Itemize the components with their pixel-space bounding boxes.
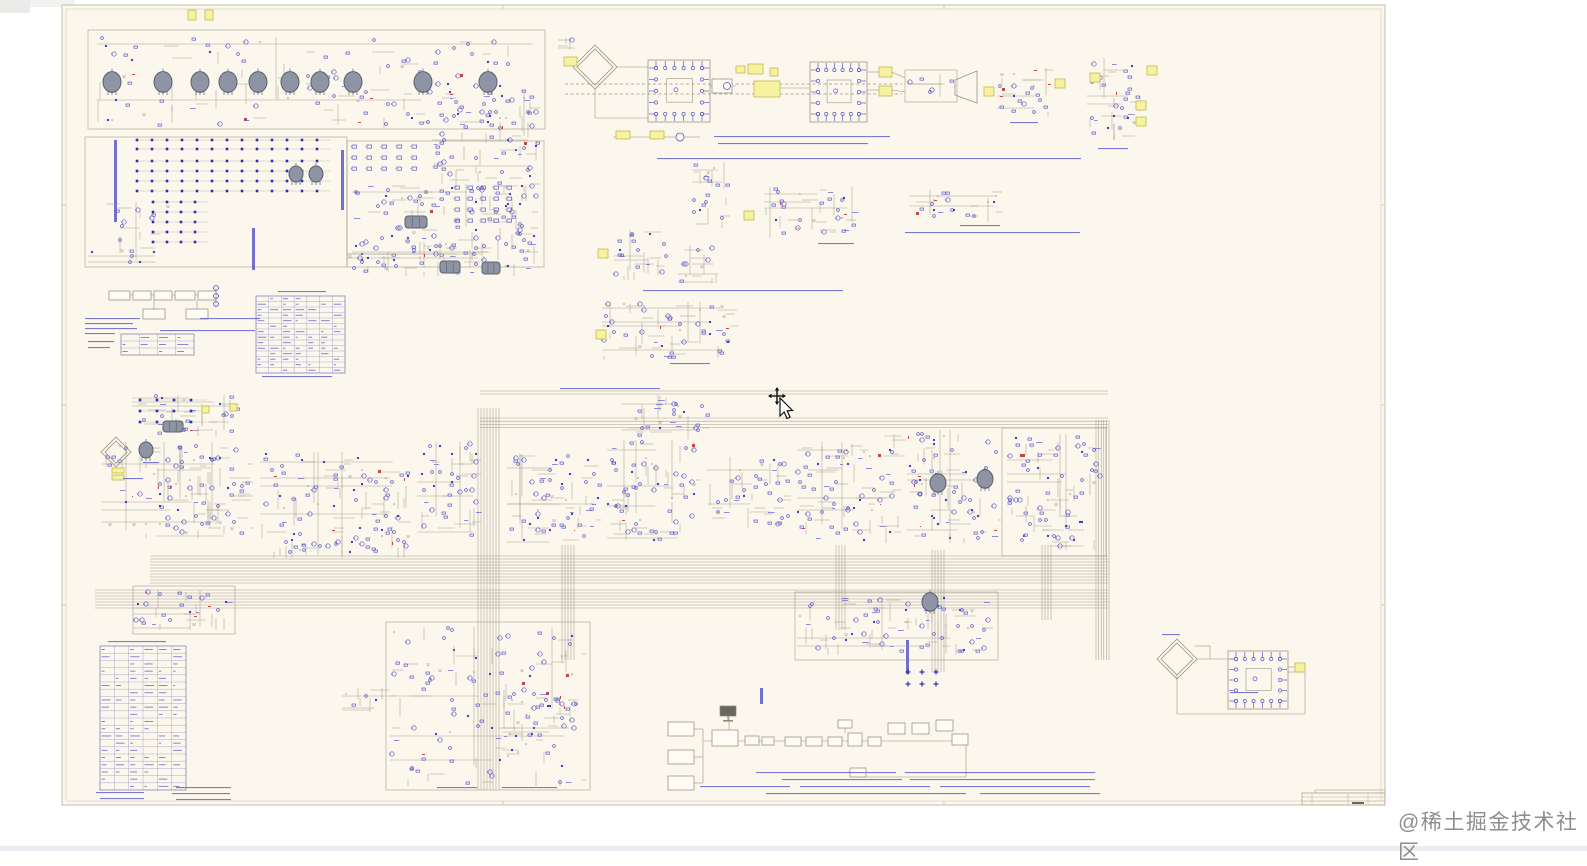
- watermark-text: @稀土掘金技术社区: [1398, 806, 1587, 866]
- yellow-net-tag[interactable]: [1090, 73, 1100, 82]
- chip-icon[interactable]: [440, 261, 460, 273]
- yellow-net-tag[interactable]: [1136, 117, 1146, 126]
- yellow-net-tag[interactable]: [1147, 66, 1157, 75]
- yellow-net-tag[interactable]: [230, 404, 237, 411]
- yellow-net-tag[interactable]: [112, 475, 124, 480]
- yellow-net-tag[interactable]: [984, 87, 994, 96]
- yellow-net-tag[interactable]: [879, 67, 892, 77]
- data-table[interactable]: [100, 646, 186, 790]
- yellow-net-tag[interactable]: [598, 249, 608, 258]
- schematic-sheet[interactable]: [62, 5, 1385, 805]
- yellow-net-tag[interactable]: [1055, 79, 1065, 88]
- yellow-net-tag[interactable]: [770, 68, 778, 76]
- yellow-net-tag[interactable]: [616, 131, 630, 139]
- yellow-net-tag[interactable]: [202, 406, 209, 413]
- yellow-net-tag[interactable]: [748, 64, 763, 74]
- yellow-net-tag[interactable]: [1136, 101, 1146, 110]
- chip-icon[interactable]: [405, 216, 427, 228]
- yellow-net-tag[interactable]: [1295, 663, 1305, 672]
- yellow-net-tag[interactable]: [754, 81, 780, 97]
- yellow-net-tag[interactable]: [736, 66, 745, 73]
- yellow-net-tag[interactable]: [112, 468, 124, 473]
- chip-icon[interactable]: [482, 262, 500, 274]
- yellow-net-tag[interactable]: [188, 10, 196, 20]
- yellow-net-tag[interactable]: [650, 131, 664, 139]
- yellow-net-tag[interactable]: [564, 57, 577, 66]
- yellow-net-tag[interactable]: [744, 211, 754, 220]
- yellow-net-tag[interactable]: [879, 86, 892, 96]
- yellow-net-tag[interactable]: [596, 330, 606, 339]
- schematic-canvas[interactable]: [0, 0, 1587, 851]
- chip-icon[interactable]: [163, 421, 183, 432]
- yellow-net-tag[interactable]: [205, 10, 213, 20]
